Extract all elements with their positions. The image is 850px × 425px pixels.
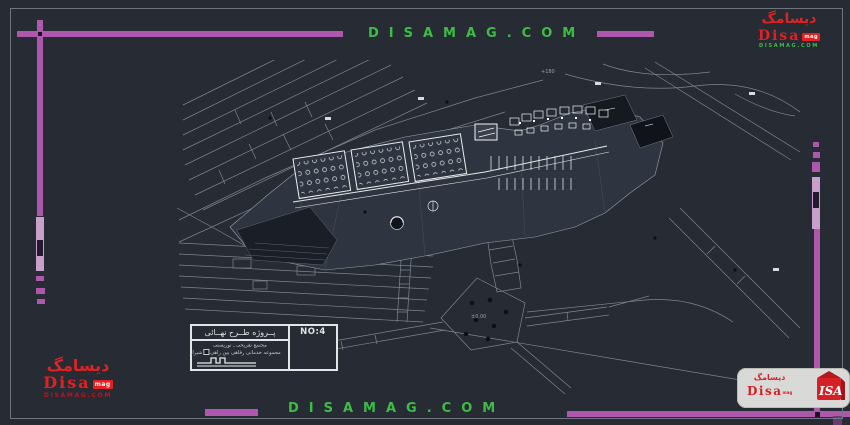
decor-left-vline bbox=[37, 20, 43, 216]
decor-topright-hseg bbox=[597, 31, 654, 37]
logo-top-right: دیسامگ Disamag DISAMAG.COM bbox=[745, 12, 833, 49]
decor-left-block bbox=[36, 217, 44, 271]
logo-latin-wordmark: Disa bbox=[758, 28, 800, 44]
watermark-top: DISAMAG.COM bbox=[368, 26, 585, 41]
title-block-hdivider bbox=[192, 339, 288, 341]
note-line-1: مجتمع تفریحی ـ توریستی bbox=[199, 342, 281, 348]
decor-bottom-cross-dot bbox=[815, 412, 820, 417]
logo-latin-wordmark: Disa bbox=[43, 373, 90, 392]
fountain bbox=[391, 217, 404, 230]
logo-mag-badge: mag bbox=[93, 380, 113, 389]
cube-logo-icon: ISA bbox=[810, 366, 848, 408]
decor-right-dash-2 bbox=[813, 152, 820, 158]
logo-bottom-left: دیسامگ Disamag DISAMAG.COM bbox=[28, 358, 128, 399]
decor-right-dash-3 bbox=[812, 162, 820, 172]
svg-text:ISA: ISA bbox=[818, 384, 843, 398]
card-mag-label: mag bbox=[783, 390, 793, 395]
logo-mag-badge: mag bbox=[802, 33, 820, 41]
decor-top-hline bbox=[17, 31, 343, 37]
logo-card-bottom-right: دیسامگ Disamag ISA bbox=[737, 368, 850, 408]
decor-right-block bbox=[812, 177, 820, 229]
scale-bar bbox=[196, 355, 258, 367]
decor-left-dash-3 bbox=[37, 299, 45, 304]
logo-site-url: DISAMAG.COM bbox=[745, 43, 833, 49]
decor-left-dash-1 bbox=[36, 276, 44, 281]
decor-left-dash-2 bbox=[36, 288, 45, 294]
card-latin-wordmark: Disa bbox=[747, 384, 783, 398]
logo-persian-wordmark: دیسامگ bbox=[745, 12, 833, 27]
logo-site-url: DISAMAG.COM bbox=[28, 392, 128, 399]
watermark-bottom: DISAMAG.COM bbox=[288, 401, 505, 416]
decor-bottom-stub bbox=[833, 416, 842, 425]
decor-right-dash-1 bbox=[813, 142, 819, 147]
decor-bottom-hline-right bbox=[567, 411, 850, 417]
decor-top-cross-dot bbox=[38, 32, 42, 36]
decor-bottom-hseg-left bbox=[205, 409, 258, 416]
sheet-number: NO:4 bbox=[290, 326, 336, 339]
title-block: پــروژه طــرح نهــائی NO:4 مجتمع تفریحی … bbox=[190, 324, 338, 371]
card-persian-wordmark: دیسامگ bbox=[747, 373, 792, 382]
elevation-label-2: ±0.00 bbox=[471, 314, 486, 320]
project-title: پــروژه طــرح نهــائی bbox=[192, 326, 288, 339]
elevation-label-1: +180 bbox=[541, 69, 555, 75]
